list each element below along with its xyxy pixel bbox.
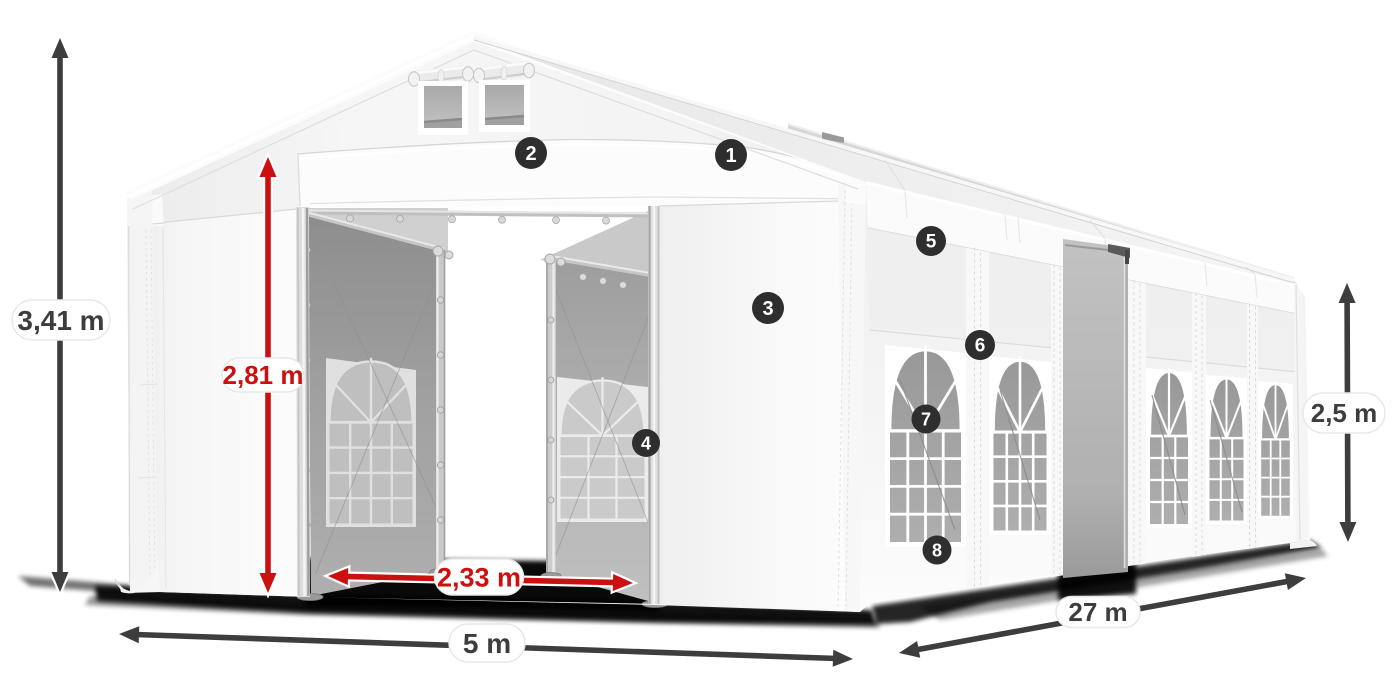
svg-text:2,33 m: 2,33 m — [437, 563, 521, 593]
svg-text:3,41 m: 3,41 m — [17, 305, 104, 336]
svg-text:4: 4 — [641, 433, 651, 453]
svg-text:3: 3 — [762, 298, 773, 320]
svg-text:2: 2 — [525, 143, 536, 165]
svg-text:7: 7 — [921, 409, 931, 429]
svg-text:5 m: 5 m — [463, 628, 511, 659]
svg-text:1: 1 — [725, 145, 736, 167]
svg-text:27 m: 27 m — [1068, 597, 1127, 627]
svg-text:5: 5 — [926, 232, 937, 253]
svg-text:6: 6 — [975, 336, 986, 357]
svg-text:2,81 m: 2,81 m — [223, 360, 304, 390]
svg-text:2,5 m: 2,5 m — [1311, 398, 1378, 428]
svg-text:8: 8 — [932, 540, 942, 560]
